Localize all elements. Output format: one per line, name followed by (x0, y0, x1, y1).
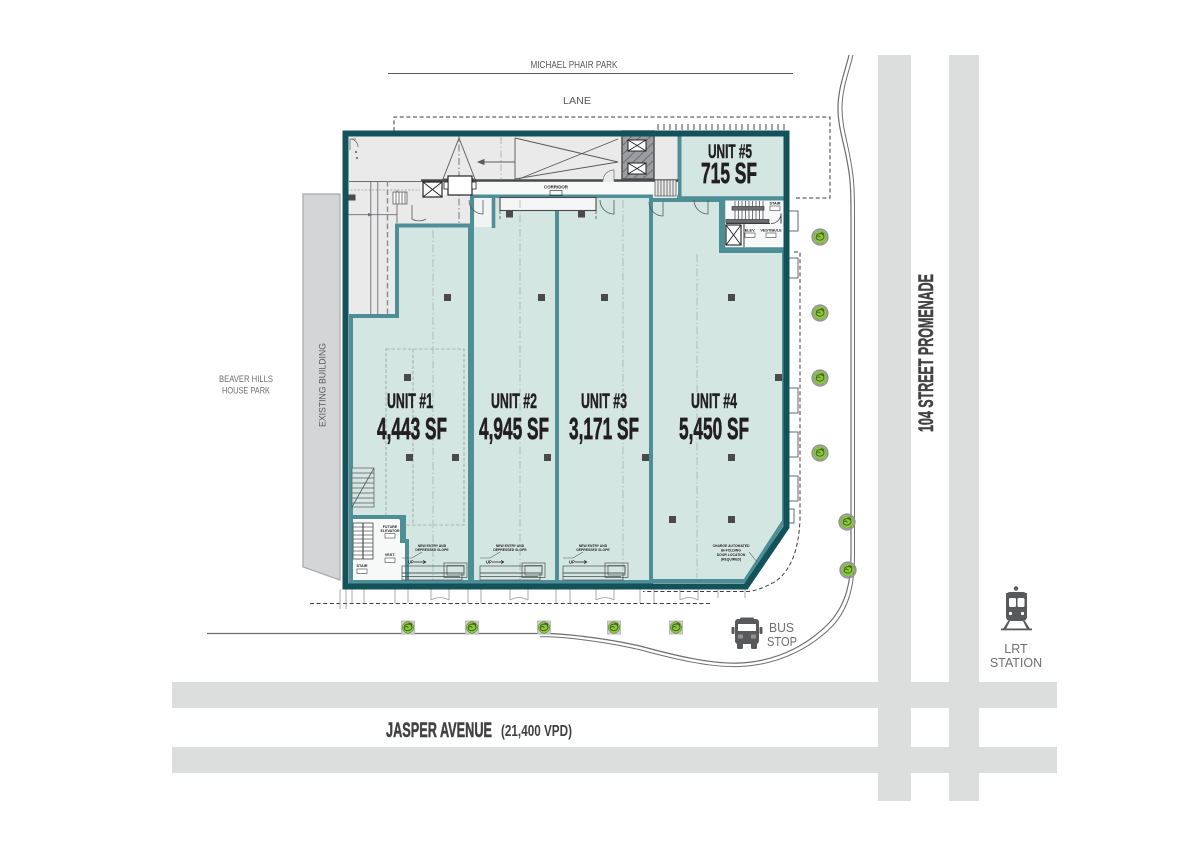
svg-text:STOP: STOP (767, 634, 797, 649)
svg-text:5,450 SF: 5,450 SF (679, 411, 749, 446)
svg-text:4,443 SF: 4,443 SF (377, 411, 447, 446)
svg-text:UNIT #3: UNIT #3 (581, 390, 627, 413)
svg-text:VEST.: VEST. (385, 553, 396, 557)
svg-text:BEAVER HILLS: BEAVER HILLS (219, 374, 273, 385)
svg-text:BI-FOLDING: BI-FOLDING (721, 549, 741, 553)
svg-text:STAIR: STAIR (769, 202, 780, 206)
svg-text:STAIR: STAIR (356, 564, 367, 568)
svg-text:BUS: BUS (769, 620, 794, 635)
svg-text:715 SF: 715 SF (701, 158, 757, 190)
svg-text:CHARGE AUTOMATED: CHARGE AUTOMATED (713, 544, 750, 548)
svg-text:UP: UP (569, 560, 575, 565)
svg-text:DEPRESSED SLOPE: DEPRESSED SLOPE (415, 548, 449, 552)
svg-text:DOOR LOCATION: DOOR LOCATION (717, 553, 746, 557)
svg-text:MICHAEL PHAIR PARK: MICHAEL PHAIR PARK (531, 59, 618, 71)
svg-text:UP: UP (408, 560, 414, 565)
svg-text:STATION: STATION (990, 656, 1042, 670)
svg-text:(21,400 VPD): (21,400 VPD) (501, 723, 572, 740)
svg-text:UP: UP (486, 560, 492, 565)
svg-text:4,945 SF: 4,945 SF (479, 411, 549, 446)
svg-text:UNIT #4: UNIT #4 (691, 390, 737, 413)
svg-text:UNIT #1: UNIT #1 (387, 390, 433, 413)
svg-text:HOUSE PARK: HOUSE PARK (222, 386, 270, 397)
svg-text:CORRIDOR: CORRIDOR (544, 185, 569, 190)
svg-text:DEPRESSED SLOPE: DEPRESSED SLOPE (576, 548, 610, 552)
svg-text:LRT: LRT (1004, 642, 1028, 656)
svg-text:DEPRESSED SLOPE: DEPRESSED SLOPE (493, 548, 527, 552)
svg-text:UNIT #2: UNIT #2 (491, 390, 537, 413)
svg-text:LANE: LANE (563, 95, 591, 107)
svg-text:104 STREET PROMENADE: 104 STREET PROMENADE (915, 274, 938, 432)
svg-text:VESTIBULE: VESTIBULE (760, 229, 782, 233)
svg-text:(REQUIRED): (REQUIRED) (721, 558, 741, 562)
svg-text:EXISTING BUILDING: EXISTING BUILDING (318, 343, 328, 427)
svg-text:ELEVATOR: ELEVATOR (381, 529, 400, 533)
svg-text:ELEV.: ELEV. (745, 229, 756, 233)
svg-text:JASPER AVENUE: JASPER AVENUE (386, 719, 492, 742)
svg-text:3,171 SF: 3,171 SF (569, 411, 639, 446)
